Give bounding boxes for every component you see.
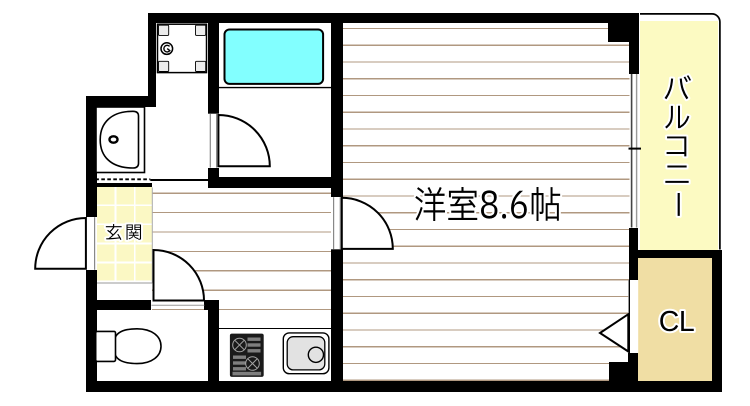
svg-text:CL: CL bbox=[659, 306, 694, 338]
